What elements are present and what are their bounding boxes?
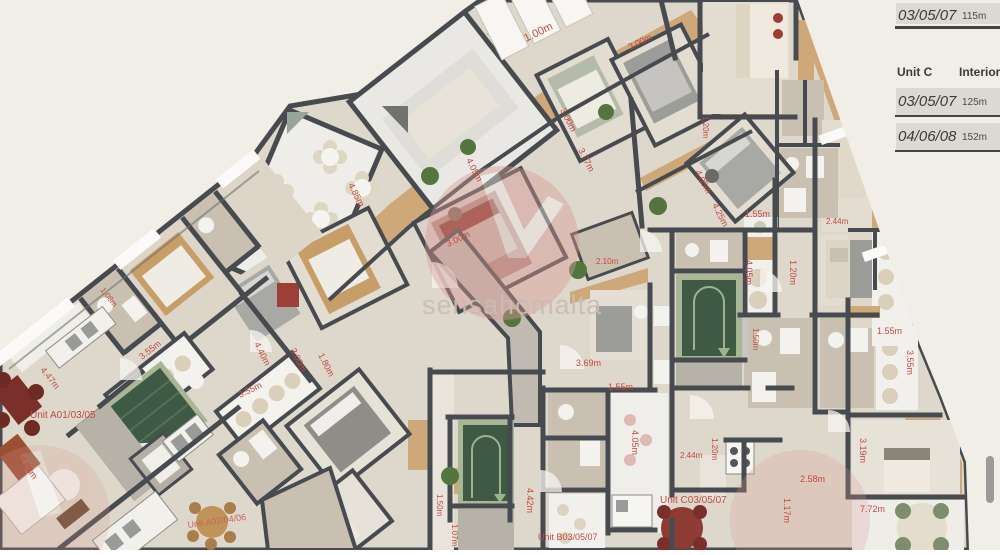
svg-text:4.05m: 4.05m [744, 260, 754, 285]
svg-text:03/05/07: 03/05/07 [898, 93, 957, 110]
svg-text:3.69m: 3.69m [576, 358, 601, 368]
svg-text:4.42m: 4.42m [525, 488, 535, 513]
svg-text:1.07m: 1.07m [450, 524, 459, 547]
svg-text:1.20m: 1.20m [788, 260, 798, 285]
svg-text:125m: 125m [962, 97, 987, 108]
svg-text:152m: 152m [962, 132, 987, 143]
svg-text:115m: 115m [962, 11, 986, 22]
svg-text:Unit B03/05/07: Unit B03/05/07 [538, 532, 598, 542]
svg-text:2.44m: 2.44m [680, 451, 703, 460]
svg-text:1.55m: 1.55m [877, 326, 902, 336]
svg-text:2.58m: 2.58m [800, 474, 825, 484]
svg-text:3.55m: 3.55m [905, 350, 915, 375]
svg-text:1.50m: 1.50m [435, 494, 444, 517]
svg-text:Unit C: Unit C [897, 65, 933, 79]
svg-text:1.55m: 1.55m [745, 209, 770, 219]
svg-text:1.55m: 1.55m [608, 382, 633, 392]
svg-text:1.20m: 1.20m [710, 438, 719, 461]
svg-text:1.50m: 1.50m [751, 328, 760, 351]
svg-text:7.72m: 7.72m [860, 504, 885, 514]
svg-text:Unit A01/03/05: Unit A01/03/05 [30, 410, 96, 421]
svg-text:sensahomalta: sensahomalta [422, 290, 602, 320]
svg-text:4.05m: 4.05m [630, 430, 640, 455]
svg-text:Unit C03/05/07: Unit C03/05/07 [660, 495, 727, 506]
svg-text:Interior: Interior [959, 65, 1000, 79]
svg-text:1.20m: 1.20m [701, 116, 710, 139]
svg-text:1.17m: 1.17m [782, 498, 792, 523]
svg-text:03/05/07: 03/05/07 [898, 7, 957, 24]
svg-text:04/06/08: 04/06/08 [898, 128, 957, 145]
svg-text:3.19m: 3.19m [858, 438, 868, 463]
svg-text:2.44m: 2.44m [826, 217, 849, 226]
svg-text:2.10m: 2.10m [596, 257, 619, 266]
